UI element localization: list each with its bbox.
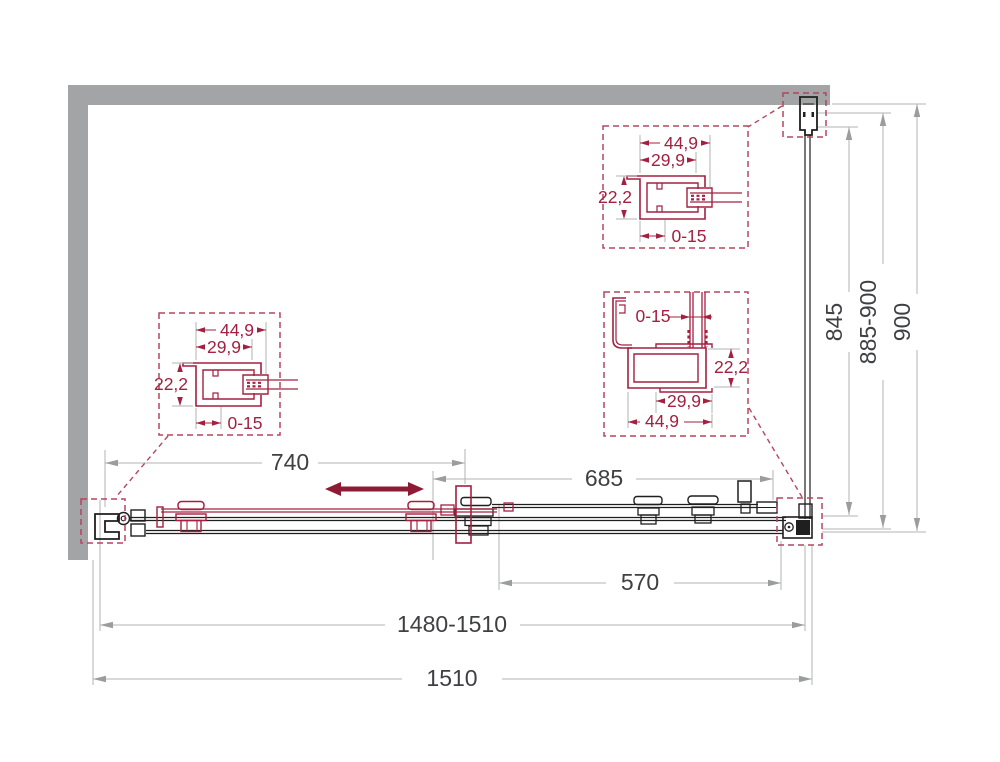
fixed-glass: [146, 531, 783, 534]
leader-corner: [749, 408, 802, 497]
detail-a-inner-width: 29,9: [207, 337, 241, 357]
detail-a-adjustment: 0-15: [227, 413, 262, 433]
dimension-885-900: 885-900: [855, 113, 886, 528]
detail-callouts: [81, 93, 826, 545]
dim-door-travel: 740: [271, 449, 309, 475]
dimension-900: 900: [889, 104, 920, 531]
side-glass: [805, 135, 810, 519]
right-fitting: [738, 481, 751, 502]
detail-c-inner-width: 29,9: [667, 391, 701, 411]
dim-glass-depth: 845: [821, 303, 847, 341]
wall-profile-left: [95, 514, 119, 539]
leader-left: [116, 436, 168, 497]
detail-top-profile-text: 44,9 29,9 22,2 0-15: [598, 133, 707, 246]
door-glass: [161, 509, 497, 512]
wall-top: [68, 85, 830, 105]
side-panel: [800, 97, 817, 519]
detail-corner-profile-text: 0-15 22,2 29,9 44,9: [635, 306, 748, 431]
leader-top: [748, 106, 782, 127]
detail-left-profile-text: 44,9 29,9 22,2 0-15: [154, 320, 263, 433]
left-bracket-upper: [131, 510, 145, 521]
detail-b-depth: 22,2: [598, 187, 632, 207]
center-roller-cap: [461, 498, 491, 506]
detail-a-depth: 22,2: [154, 374, 188, 394]
roller-cap-3: [634, 497, 662, 505]
detail-c-outer-width: 44,9: [645, 411, 679, 431]
dim-adjustable-width: 1480-1510: [397, 611, 507, 637]
dim-total-width: 1510: [426, 665, 477, 691]
dim-opening: 570: [621, 569, 659, 595]
shower-enclosure-diagram: 740 685 570 1480-1510 1510 845 885-900: [0, 0, 1000, 762]
dimension-1510: 1510: [93, 665, 812, 691]
door-roller-2-cap: [408, 502, 434, 510]
detail-c-depth: 22,2: [714, 357, 748, 377]
wall: [68, 85, 830, 560]
slide-direction-arrow: [325, 482, 424, 496]
glass-in-profile: [246, 380, 298, 389]
detail-b-adjustment: 0-15: [671, 226, 706, 246]
technical-drawing-canvas: 740 685 570 1480-1510 1510 845 885-900: [0, 0, 1000, 762]
left-bracket-lower: [131, 524, 145, 536]
track-rail: [130, 518, 786, 521]
dim-total-depth: 900: [889, 303, 915, 341]
wall-left: [68, 85, 88, 560]
detail-b-inner-width: 29,9: [651, 150, 685, 170]
dim-fixed-section: 685: [585, 465, 623, 491]
detail-c-adjustment: 0-15: [635, 306, 670, 326]
dimension-740: 740: [105, 449, 465, 475]
dim-adjustable-depth: 885-900: [855, 280, 881, 364]
dimension-570: 570: [499, 569, 781, 595]
dimension-845: 845: [821, 127, 852, 515]
roller-cap-4: [688, 496, 718, 504]
door-roller-1-cap: [178, 502, 204, 510]
dimension-685: 685: [433, 465, 773, 491]
dimension-1480-1510: 1480-1510: [100, 611, 805, 637]
glass-panels-in-corner: [690, 292, 705, 348]
fixed-seal-profile: [492, 505, 758, 508]
